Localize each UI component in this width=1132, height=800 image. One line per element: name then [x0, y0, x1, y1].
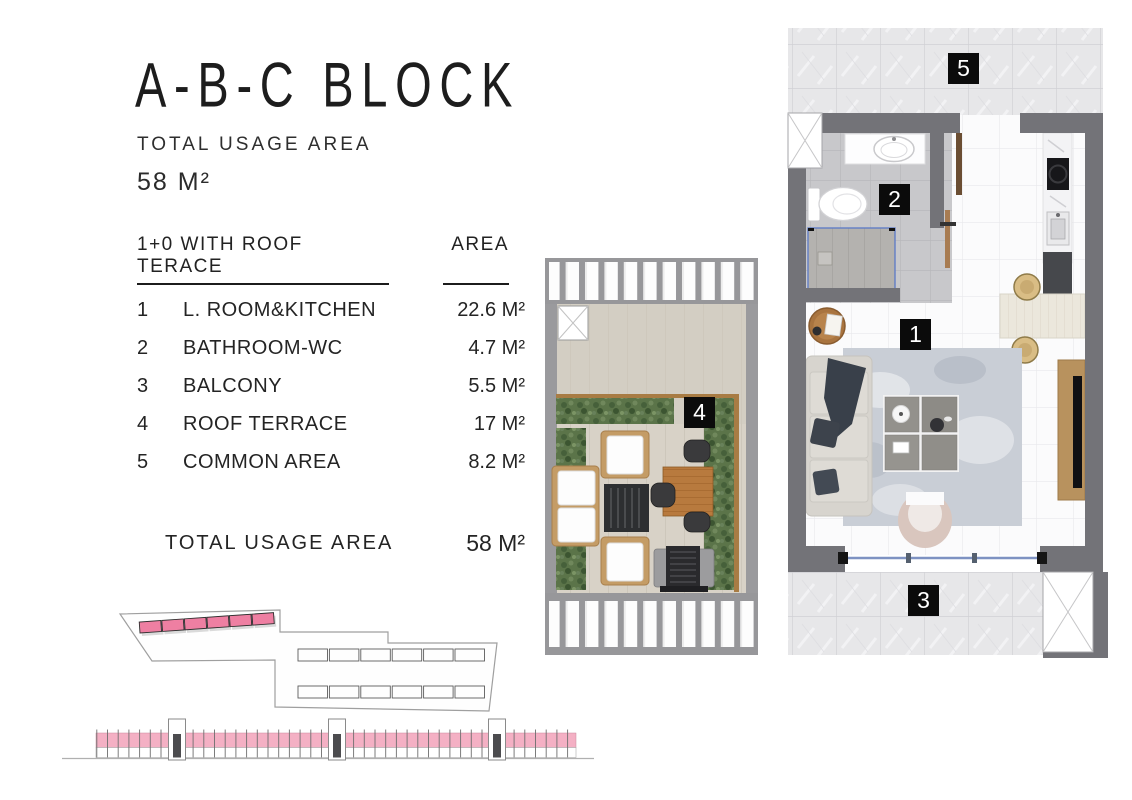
shower-drain	[818, 252, 832, 265]
outdoor-armchair	[601, 537, 649, 585]
outdoor-coffee-table	[604, 484, 649, 532]
unit-block	[298, 649, 328, 661]
wall	[1085, 113, 1103, 553]
svg-text:4: 4	[693, 399, 706, 425]
cooktop	[1047, 158, 1069, 190]
planter	[556, 398, 674, 424]
highlighted-unit-block	[252, 613, 274, 625]
planter-edge	[734, 394, 739, 592]
floorplan-page: A-B-C BLOCK TOTAL USAGE AREA 58 M² 1+0 W…	[0, 0, 1132, 800]
highlighted-unit-block	[229, 614, 251, 626]
shaft-box	[788, 113, 822, 168]
toilet	[808, 188, 867, 222]
highlighted-unit-block	[162, 619, 184, 631]
wall	[788, 546, 845, 572]
highlighted-unit-block	[139, 621, 161, 633]
unit-block	[392, 686, 422, 698]
stair-tower	[169, 719, 186, 760]
svg-text:2: 2	[888, 186, 901, 212]
outdoor-chair	[651, 483, 675, 507]
dining-table	[1000, 294, 1085, 338]
stair-tower	[329, 719, 346, 760]
unit-block	[392, 649, 422, 661]
tv	[1073, 376, 1082, 488]
kitchen-sink	[1047, 212, 1069, 245]
stair-tower	[489, 719, 506, 760]
unit-block	[298, 686, 328, 698]
pillow	[812, 468, 839, 495]
pergola-bottom	[545, 593, 758, 655]
wall	[788, 168, 806, 553]
outdoor-sofa	[552, 466, 599, 546]
side-table	[809, 308, 845, 344]
outdoor-armchair	[601, 431, 649, 478]
svg-text:1: 1	[909, 321, 922, 347]
site-plan	[120, 610, 497, 711]
unit-block	[424, 686, 454, 698]
unit-block	[455, 686, 485, 698]
unit-block	[455, 649, 485, 661]
bbq-grill	[654, 546, 714, 592]
shaft-box	[1043, 572, 1093, 652]
kitchen-cabinet	[1043, 252, 1072, 296]
kitchen-counter	[1043, 133, 1072, 296]
room-label-common: 5	[948, 53, 979, 84]
sink	[845, 134, 925, 164]
door-leaf	[956, 133, 962, 195]
unit-block	[329, 649, 359, 661]
highlighted-unit-block	[184, 617, 206, 629]
plan-graphics: 4	[0, 0, 1132, 800]
pillow	[810, 418, 841, 449]
svg-text:3: 3	[917, 587, 930, 613]
wall	[820, 113, 960, 133]
elevation-drawing	[62, 719, 594, 760]
unit-block	[424, 649, 454, 661]
outdoor-chair	[684, 512, 710, 532]
door-handle	[940, 222, 956, 226]
room-label-terrace: 4	[684, 397, 715, 428]
outdoor-chair	[684, 440, 710, 462]
room-label-bathroom: 2	[879, 184, 910, 215]
wall	[1040, 546, 1103, 572]
svg-text:5: 5	[957, 55, 970, 81]
planter	[556, 428, 586, 470]
dining-chair	[1014, 274, 1040, 300]
sofa	[806, 356, 872, 516]
wall	[788, 288, 900, 302]
tv-unit	[1058, 360, 1085, 500]
desk-chair	[898, 492, 952, 548]
shaft-box	[558, 306, 588, 340]
unit-block	[361, 686, 391, 698]
highlighted-unit-block	[207, 616, 229, 628]
roof-terrace-plan: 4	[545, 258, 758, 655]
coffee-table	[883, 395, 959, 472]
wall	[930, 133, 944, 228]
pergola-top	[545, 258, 758, 304]
room-label-living: 1	[900, 319, 931, 350]
common-area-floor	[788, 28, 1103, 115]
unit-block	[329, 686, 359, 698]
door-leaf	[945, 210, 950, 268]
wall	[1093, 572, 1108, 658]
unit-block	[361, 649, 391, 661]
main-unit-plan: 5 2 1 3	[788, 28, 1108, 658]
planter	[556, 540, 586, 590]
room-label-balcony: 3	[908, 585, 939, 616]
